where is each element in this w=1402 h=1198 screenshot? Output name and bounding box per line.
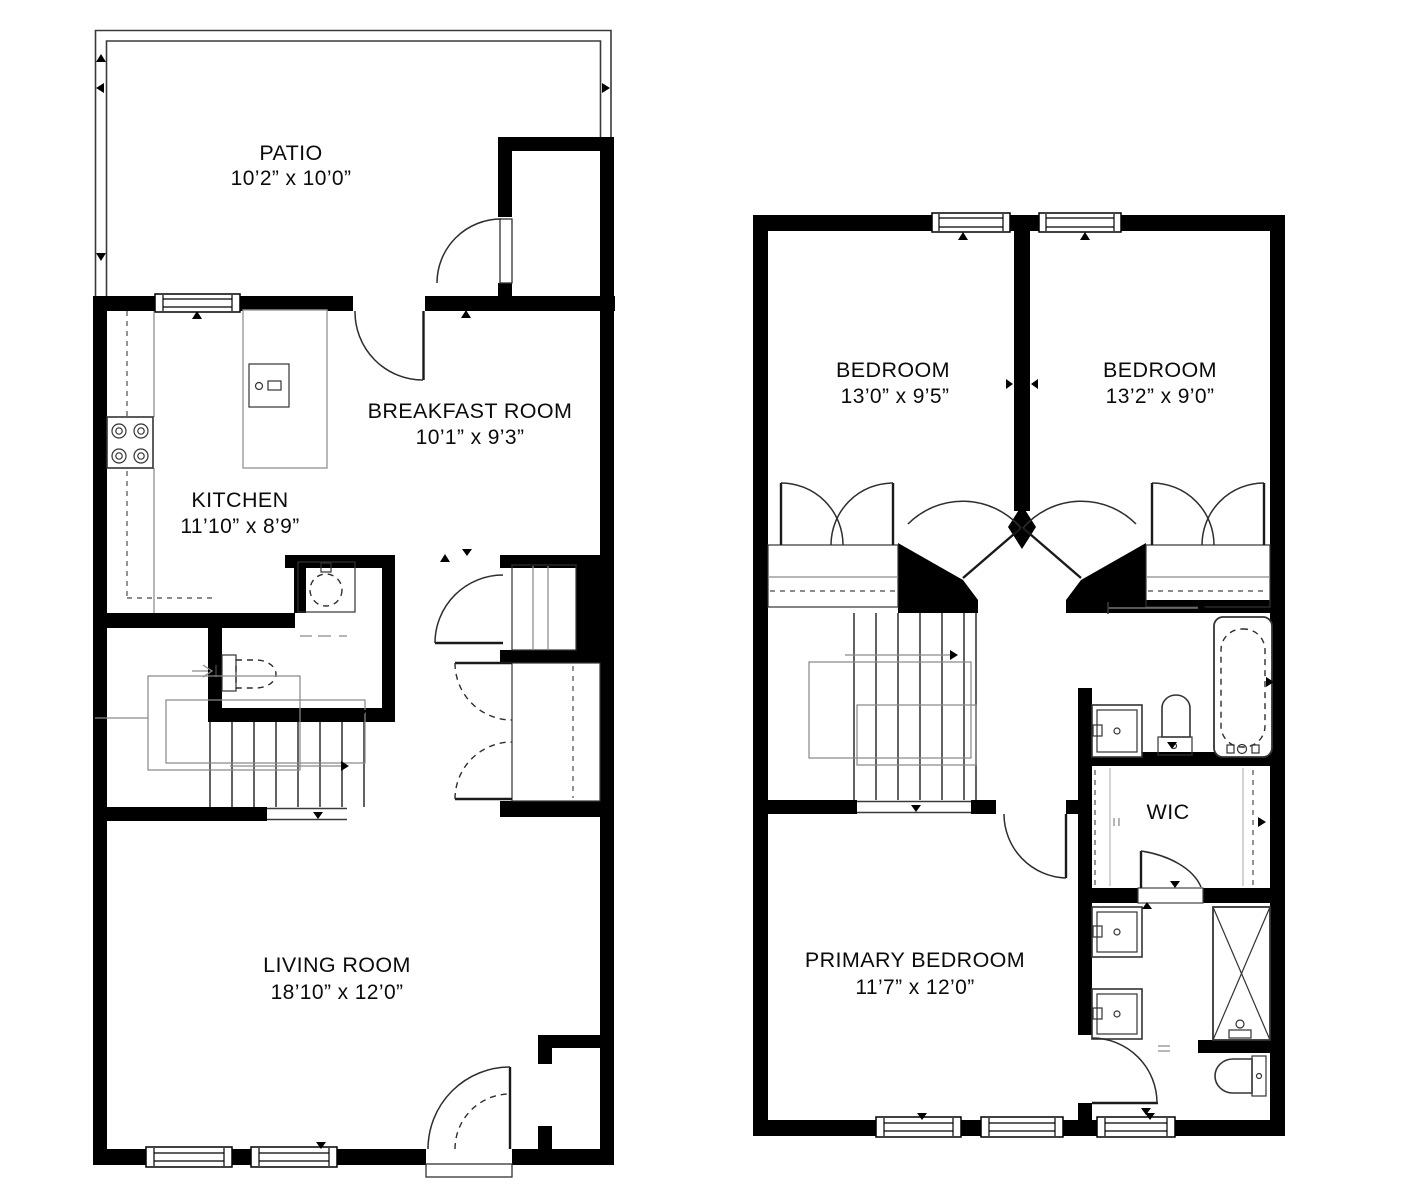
first-floor-outer-walls — [93, 296, 615, 1165]
closet-door-swing-icon — [455, 663, 512, 720]
primary-bathroom — [1092, 907, 1270, 1115]
bathtub-icon — [1214, 617, 1272, 757]
breakfast-door — [355, 311, 424, 380]
hall-closet — [455, 663, 600, 801]
storage-door-leaf — [500, 219, 512, 283]
toilet-icon — [1215, 1056, 1266, 1096]
closet-door-swing-icon — [455, 742, 512, 799]
toilet-icon — [1158, 695, 1192, 755]
entry-niche — [435, 565, 576, 650]
primary-bedroom-door — [1004, 814, 1066, 878]
bedroom-window-right — [1039, 213, 1121, 232]
breakfast-room-dims: 10’1” x 9’3” — [416, 426, 525, 449]
front-door — [426, 1067, 512, 1177]
powder-toilet-icon — [222, 655, 276, 691]
powder-sink-icon — [298, 562, 355, 612]
first-floor-plan: PATIO 10’2” x 10’0” BREAKFAST ROOM 10’1”… — [93, 31, 615, 1178]
stairs-first-floor — [95, 676, 365, 807]
primary-window-left — [876, 1117, 961, 1137]
patio-label: PATIO — [259, 141, 322, 165]
shower-icon — [1213, 907, 1270, 1040]
vanity-sink-icon — [1092, 705, 1142, 757]
bedroom-left-label: BEDROOM — [836, 358, 950, 382]
bedroom-right-label: BEDROOM — [1103, 358, 1217, 382]
primary-bedroom-dims: 11’7” x 12’0” — [855, 976, 974, 999]
bathroom-window — [1097, 1117, 1175, 1137]
patio-walls — [96, 31, 612, 297]
bedroom-left-closet — [768, 483, 898, 607]
living-room-window-right — [251, 1147, 337, 1167]
wic-door-opening — [1138, 888, 1203, 903]
kitchen-dims: 11’10” x 8’9” — [180, 515, 299, 538]
primary-bedroom-label: PRIMARY BEDROOM — [805, 948, 1025, 972]
bedroom-left-dims: 13’0” x 9’5” — [841, 385, 950, 408]
patio-storage-closet — [437, 137, 614, 311]
stove-icon — [107, 417, 153, 468]
hall-bathroom — [1092, 602, 1272, 757]
storage-door-swing-icon — [437, 219, 501, 283]
floor-plan-canvas: PATIO 10’2” x 10’0” BREAKFAST ROOM 10’1”… — [0, 0, 1402, 1198]
kitchen-label: KITCHEN — [191, 488, 288, 512]
front-door-step — [426, 1164, 512, 1177]
kitchen-island — [243, 310, 327, 468]
vanity-sink-icon — [1092, 989, 1142, 1039]
primary-window-right — [981, 1117, 1063, 1137]
first-floor-interior-walls — [95, 555, 614, 1150]
bedroom-right-dims: 13’2” x 9’0” — [1106, 385, 1215, 408]
kitchen-window — [155, 294, 240, 312]
bedroom-window-left — [932, 213, 1010, 232]
breakfast-room-label: BREAKFAST ROOM — [368, 399, 573, 423]
second-floor-plan: BEDROOM 13’0” x 9’5” BEDROOM 13’2” x 9’0… — [753, 213, 1285, 1137]
primary-bath-door — [1092, 1038, 1158, 1115]
living-room-label: LIVING ROOM — [263, 953, 411, 977]
living-room-window-left — [146, 1147, 232, 1167]
bedroom-right-closet — [1146, 483, 1270, 607]
floor-plan-page: PATIO 10’2” x 10’0” BREAKFAST ROOM 10’1”… — [0, 0, 1402, 1198]
stair-rail-opening — [857, 802, 971, 813]
living-room-dims: 18’10” x 12’0” — [271, 981, 404, 1004]
niche-door-swing-icon — [435, 575, 503, 643]
stair-rail-opening — [267, 809, 347, 820]
stair-direction-arrow — [950, 650, 958, 660]
vanity-sink-icon — [1092, 907, 1142, 957]
wic-label: WIC — [1147, 800, 1190, 824]
patio-dims: 10’2” x 10’0” — [231, 167, 352, 190]
stairs-second-floor — [809, 613, 976, 813]
